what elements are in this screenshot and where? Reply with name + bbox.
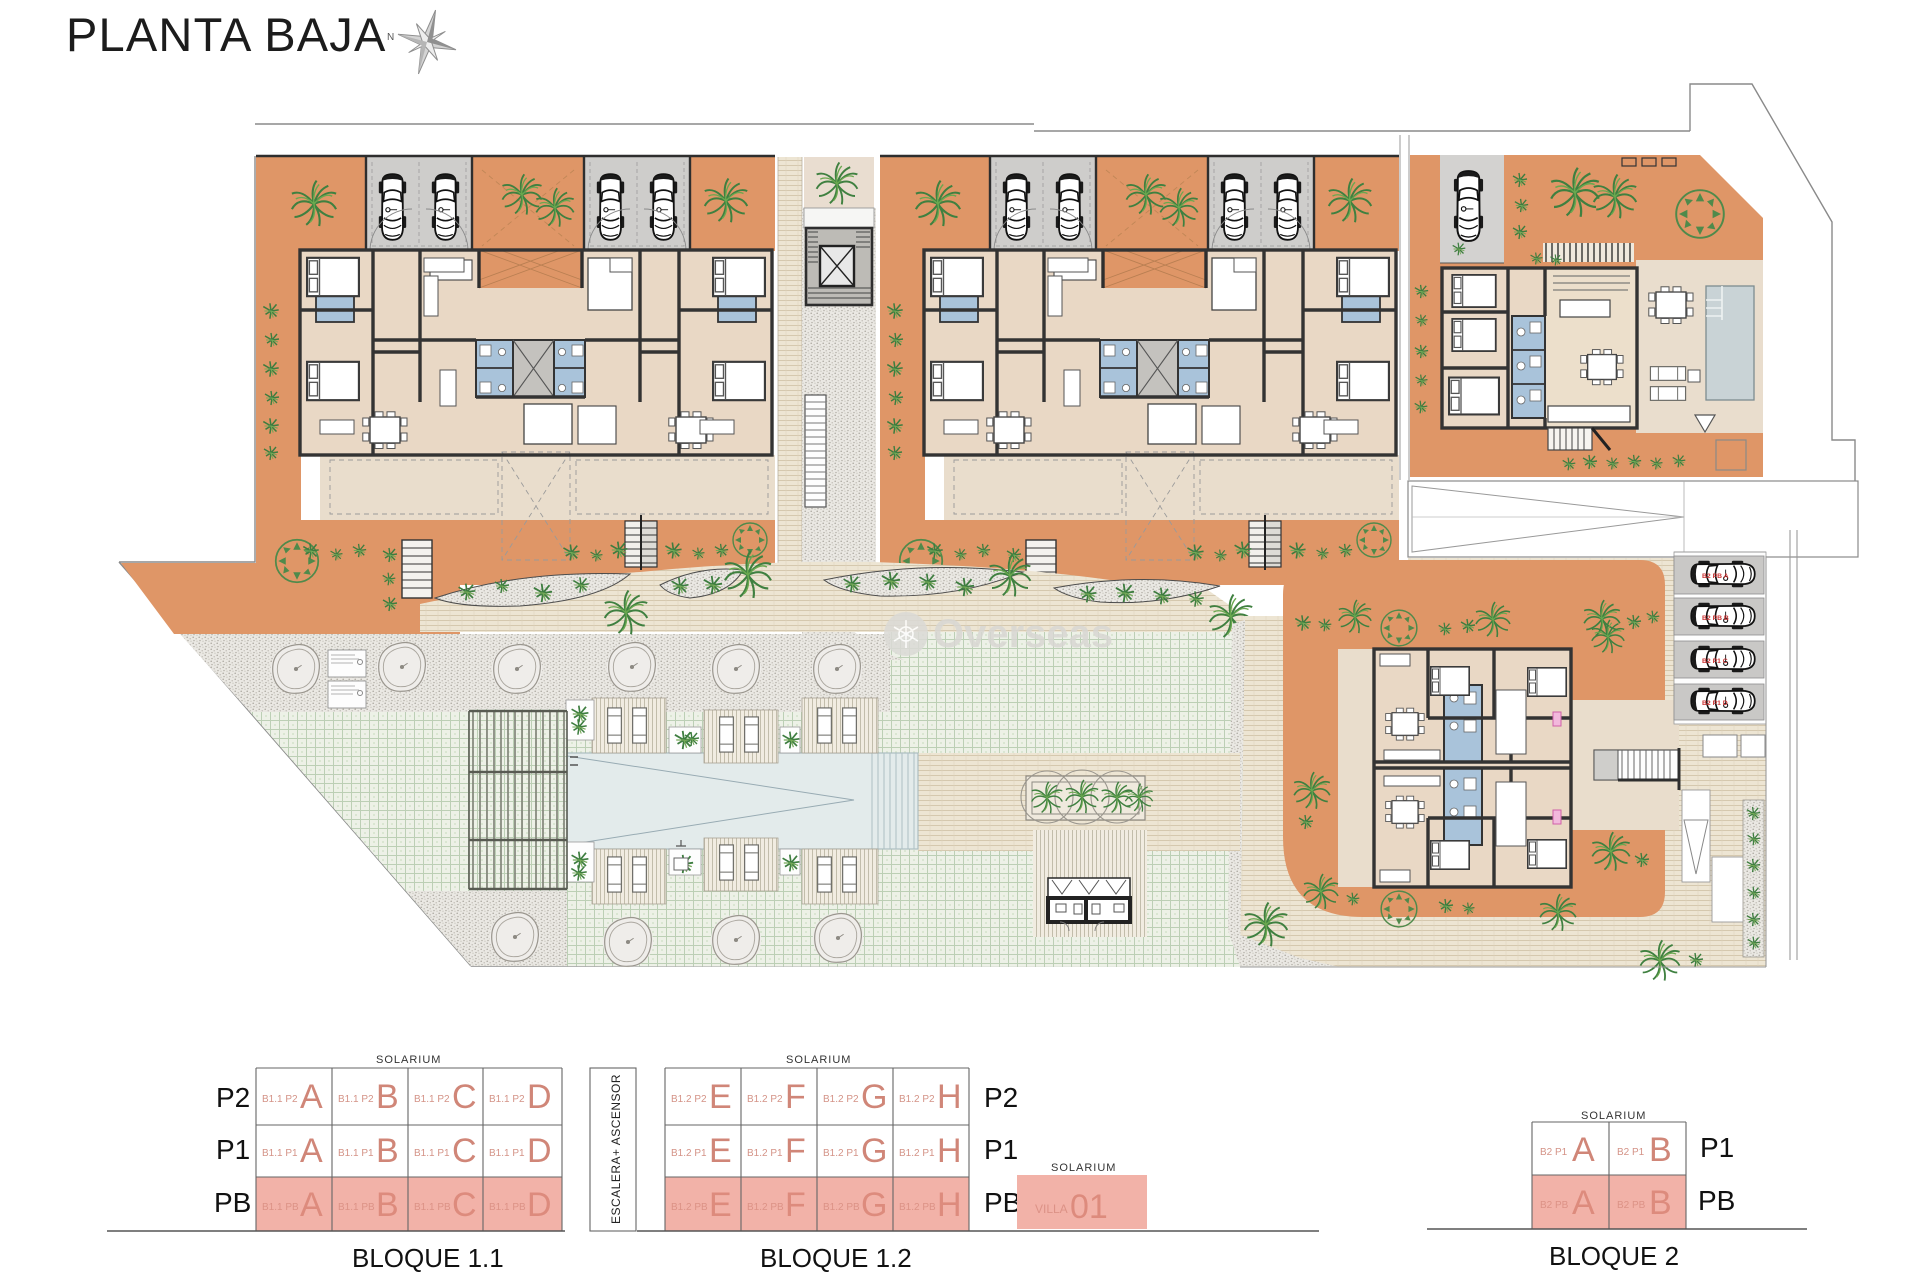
svg-text:A: A: [1572, 1131, 1595, 1169]
svg-text:H: H: [937, 1078, 962, 1116]
svg-text:B1.1 P1: B1.1 P1: [338, 1148, 374, 1159]
svg-text:G: G: [861, 1186, 887, 1224]
svg-text:B2 PB: B2 PB: [1540, 1200, 1569, 1211]
svg-text:E: E: [709, 1132, 732, 1170]
svg-text:VILLA: VILLA: [1035, 1202, 1068, 1216]
svg-text:F: F: [785, 1078, 806, 1116]
svg-text:B1.2 P2: B1.2 P2: [899, 1094, 935, 1105]
svg-text:A: A: [300, 1078, 323, 1116]
svg-text:PB: PB: [214, 1187, 251, 1218]
svg-text:A: A: [300, 1132, 323, 1170]
svg-text:H: H: [937, 1132, 962, 1170]
svg-text:B2 P1 C: B2 P1 C: [1702, 658, 1728, 665]
svg-text:E: E: [709, 1186, 732, 1224]
svg-text:P1: P1: [216, 1134, 250, 1165]
svg-text:B1.1 PB: B1.1 PB: [338, 1202, 375, 1213]
svg-text:B: B: [1649, 1131, 1672, 1169]
svg-text:G: G: [861, 1132, 887, 1170]
svg-text:F: F: [785, 1132, 806, 1170]
svg-text:B1.2 P2: B1.2 P2: [747, 1094, 783, 1105]
svg-text:B: B: [376, 1132, 399, 1170]
svg-text:SOLARIUM: SOLARIUM: [376, 1054, 441, 1066]
svg-text:B1.2 P2: B1.2 P2: [823, 1094, 859, 1105]
svg-text:ESCALERA+ ASCENSOR: ESCALERA+ ASCENSOR: [609, 1074, 623, 1224]
svg-text:P1: P1: [984, 1134, 1018, 1165]
svg-text:SOLARIUM: SOLARIUM: [786, 1054, 851, 1066]
svg-text:PB: PB: [1698, 1185, 1735, 1216]
svg-text:01: 01: [1070, 1188, 1108, 1226]
svg-text:B2 P1 D: B2 P1 D: [1702, 700, 1728, 707]
svg-text:B: B: [1649, 1184, 1672, 1222]
svg-text:C: C: [452, 1078, 477, 1116]
svg-text:BLOQUE 1.2: BLOQUE 1.2: [760, 1243, 912, 1273]
svg-text:B1.2 PB: B1.2 PB: [671, 1202, 708, 1213]
svg-text:BLOQUE 1.1: BLOQUE 1.1: [352, 1243, 504, 1273]
svg-text:B2 PB B: B2 PB B: [1702, 615, 1729, 622]
svg-text:B: B: [376, 1186, 399, 1224]
svg-text:B1.2 PB: B1.2 PB: [823, 1202, 860, 1213]
svg-text:D: D: [527, 1078, 552, 1116]
svg-text:P2: P2: [216, 1082, 250, 1113]
svg-text:B1.1 P1: B1.1 P1: [262, 1148, 298, 1159]
svg-text:B1.2 P1: B1.2 P1: [899, 1148, 935, 1159]
svg-text:B2 P1: B2 P1: [1617, 1147, 1645, 1158]
svg-text:H: H: [937, 1186, 962, 1224]
svg-text:B1.1 P2: B1.1 P2: [414, 1094, 450, 1105]
svg-text:B1.2 PB: B1.2 PB: [899, 1202, 936, 1213]
svg-text:B2 PB: B2 PB: [1617, 1200, 1646, 1211]
svg-text:A: A: [300, 1186, 323, 1224]
svg-text:Overseas: Overseas: [933, 612, 1113, 656]
svg-text:G: G: [861, 1078, 887, 1116]
svg-text:B2 PB A: B2 PB A: [1702, 573, 1729, 580]
svg-text:D: D: [527, 1132, 552, 1170]
svg-text:D: D: [527, 1186, 552, 1224]
svg-text:B1.2 P1: B1.2 P1: [823, 1148, 859, 1159]
svg-text:C: C: [452, 1132, 477, 1170]
svg-text:B1.2 P1: B1.2 P1: [747, 1148, 783, 1159]
svg-text:N: N: [387, 32, 394, 43]
svg-text:B1.1 P2: B1.1 P2: [338, 1094, 374, 1105]
svg-text:F: F: [785, 1186, 806, 1224]
svg-text:B1.1 P1: B1.1 P1: [414, 1148, 450, 1159]
svg-text:BLOQUE 2: BLOQUE 2: [1549, 1241, 1679, 1271]
svg-text:B1.1 P1: B1.1 P1: [489, 1148, 525, 1159]
svg-text:B1.2 P1: B1.2 P1: [671, 1148, 707, 1159]
svg-text:B1.1 P2: B1.1 P2: [489, 1094, 525, 1105]
svg-text:B1.2 PB: B1.2 PB: [747, 1202, 784, 1213]
svg-text:A: A: [1572, 1184, 1595, 1222]
svg-text:B1.1 PB: B1.1 PB: [489, 1202, 526, 1213]
svg-text:B1.1 PB: B1.1 PB: [262, 1202, 299, 1213]
svg-text:B2 P1: B2 P1: [1540, 1147, 1568, 1158]
svg-text:B1.2 P2: B1.2 P2: [671, 1094, 707, 1105]
svg-text:B: B: [376, 1078, 399, 1116]
svg-text:PB: PB: [984, 1187, 1021, 1218]
svg-text:PLANTA BAJA: PLANTA BAJA: [66, 8, 387, 61]
svg-text:SOLARIUM: SOLARIUM: [1051, 1162, 1116, 1174]
svg-text:C: C: [452, 1186, 477, 1224]
svg-text:P1: P1: [1700, 1132, 1734, 1163]
svg-text:SOLARIUM: SOLARIUM: [1581, 1110, 1646, 1122]
svg-text:P2: P2: [984, 1082, 1018, 1113]
svg-text:B1.1 PB: B1.1 PB: [414, 1202, 451, 1213]
svg-text:B1.1 P2: B1.1 P2: [262, 1094, 298, 1105]
svg-text:E: E: [709, 1078, 732, 1116]
